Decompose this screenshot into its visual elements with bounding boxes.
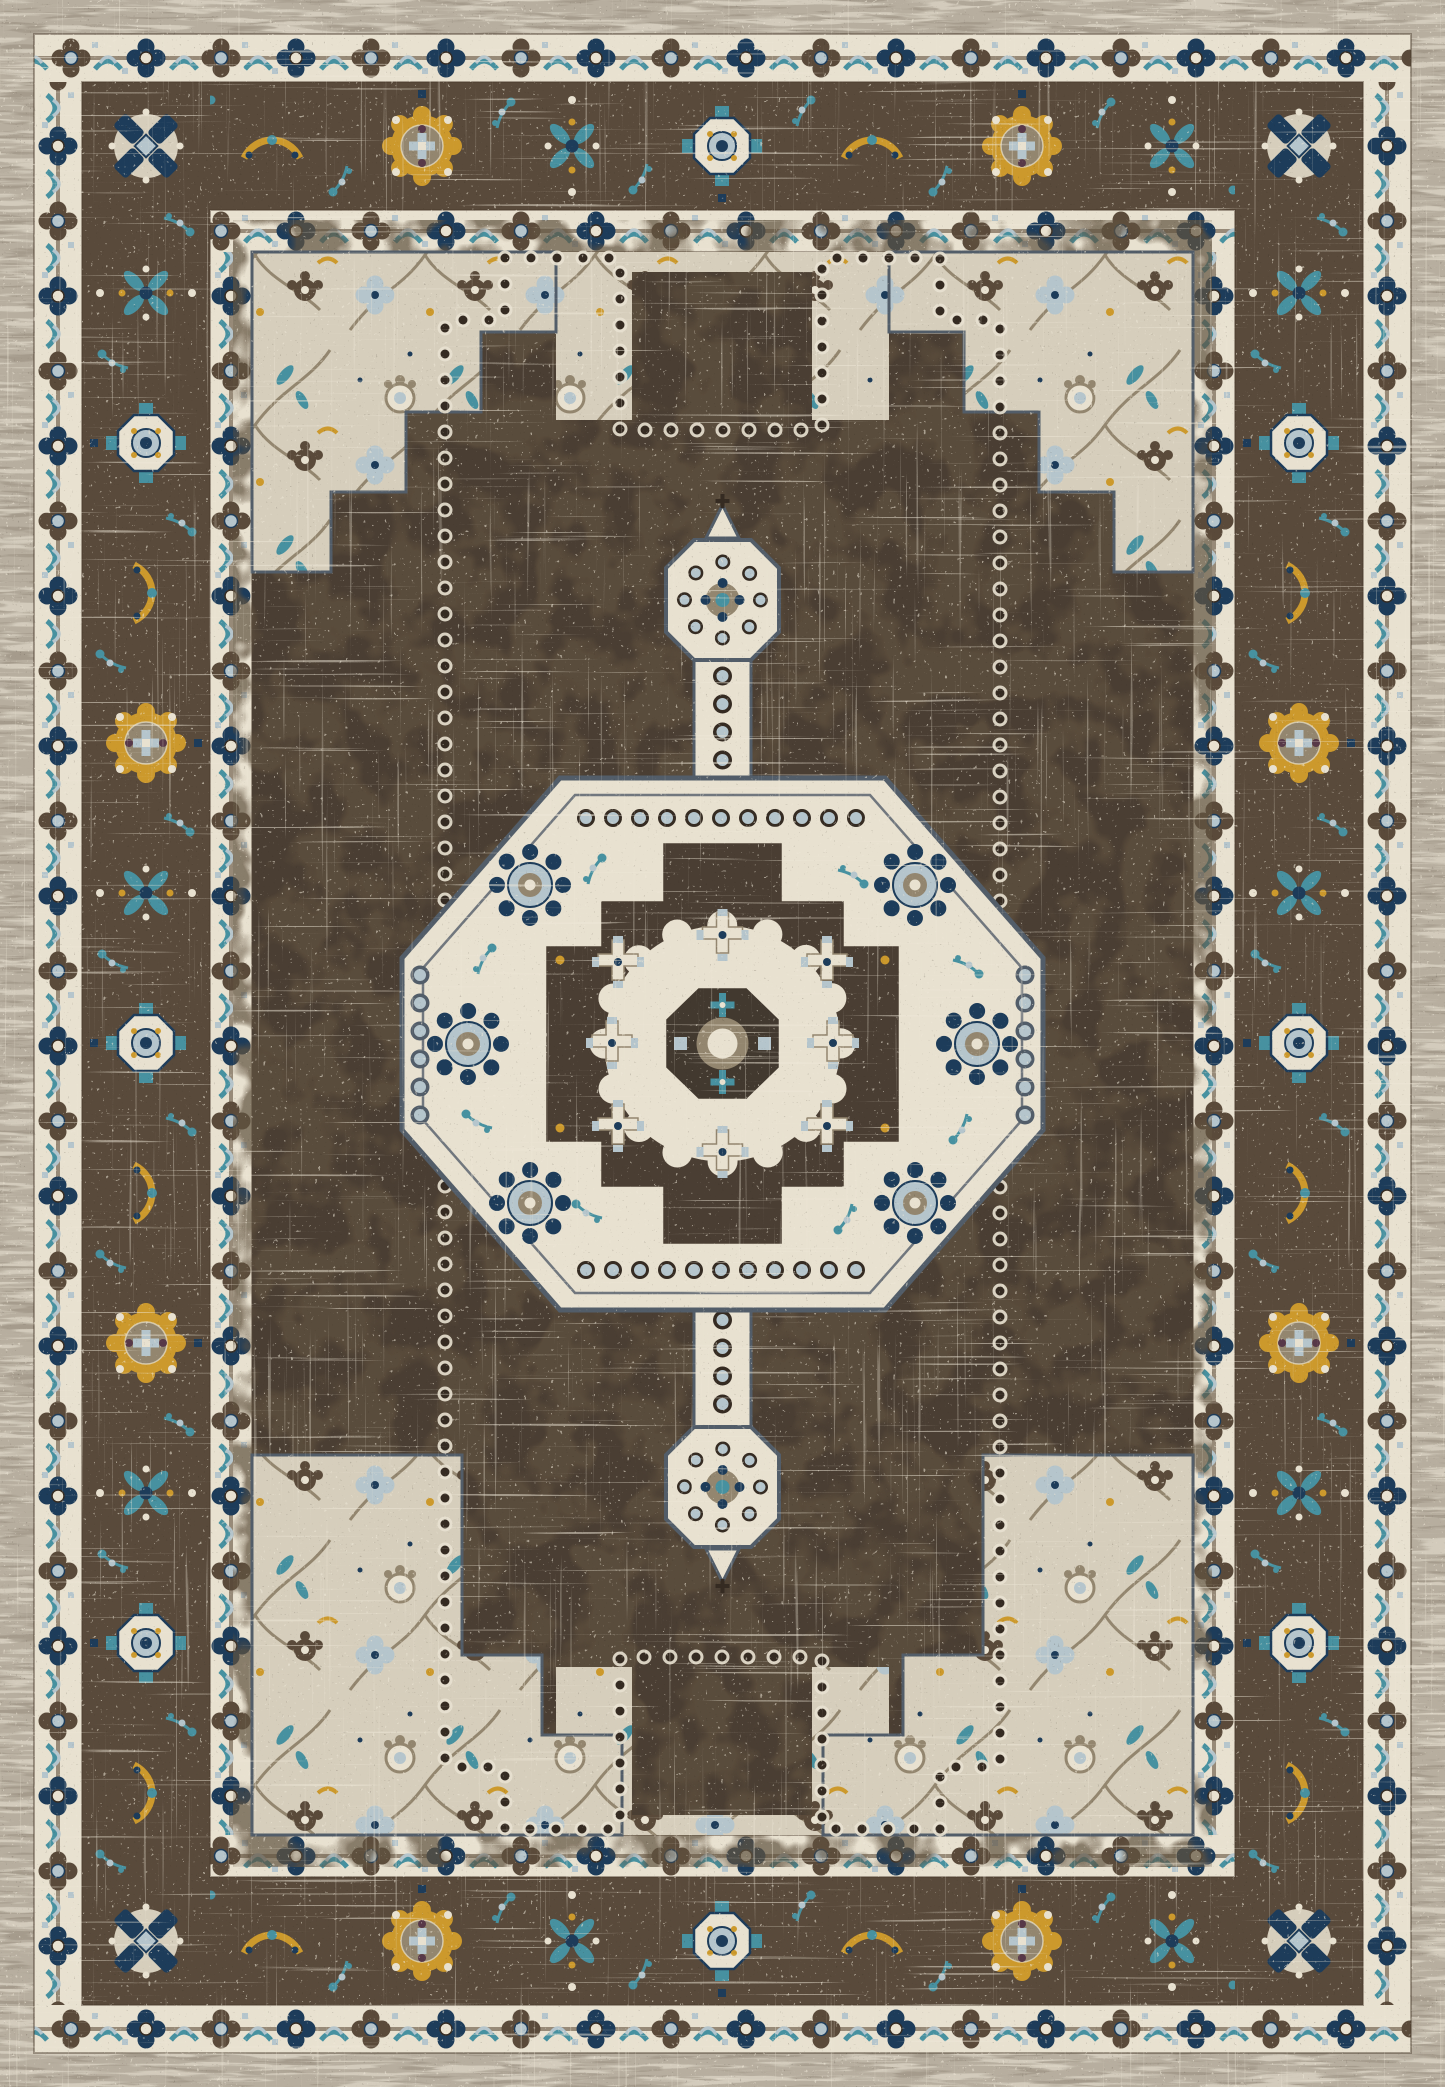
rug-image (0, 0, 1445, 2087)
rug-photo (0, 0, 1445, 2087)
distress-overlay (0, 0, 1445, 2087)
